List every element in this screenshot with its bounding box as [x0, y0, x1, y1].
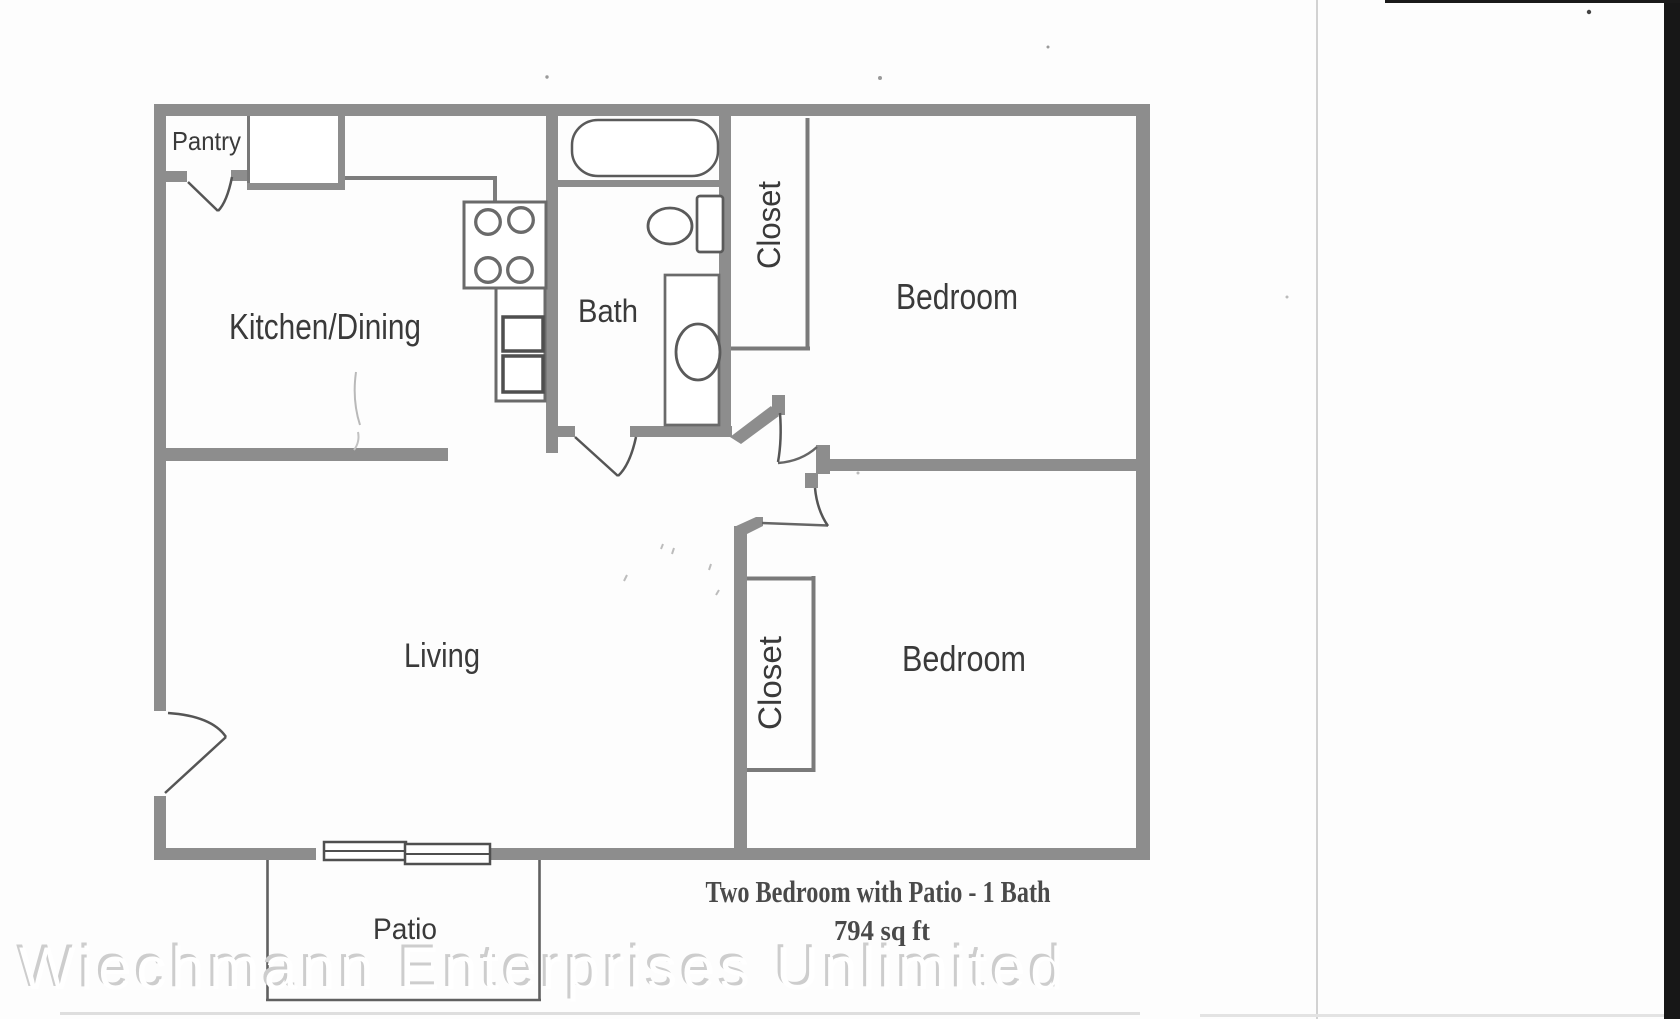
svg-text:Wiechmann Enterprises Unlimite: Wiechmann Enterprises Unlimited — [19, 935, 1068, 1002]
svg-text:Closet: Closet — [751, 181, 787, 269]
svg-text:Closet: Closet — [752, 636, 788, 730]
svg-text:Bedroom: Bedroom — [902, 638, 1026, 679]
svg-text:Bath: Bath — [578, 293, 638, 329]
svg-text:Kitchen/Dining: Kitchen/Dining — [229, 306, 421, 347]
svg-text:Pantry: Pantry — [172, 126, 241, 156]
svg-text:Bedroom: Bedroom — [896, 276, 1018, 317]
svg-text:Living: Living — [404, 637, 480, 675]
svg-text:Two Bedroom with Patio - 1 Bat: Two Bedroom with Patio - 1 Bath — [706, 874, 1051, 909]
